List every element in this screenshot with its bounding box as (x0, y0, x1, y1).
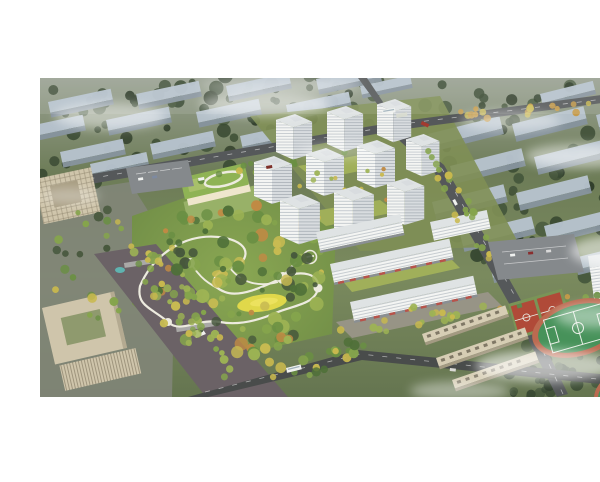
aerial-rendering-figure (40, 16, 600, 466)
tree (425, 148, 431, 154)
tree (235, 274, 247, 286)
tree (87, 293, 97, 303)
tree (486, 255, 492, 261)
tree (187, 216, 195, 224)
tree (565, 294, 570, 299)
tree (221, 373, 228, 380)
tree (225, 278, 231, 284)
bottom-margin (40, 397, 600, 466)
plaza-pool (115, 267, 125, 273)
tree (226, 365, 233, 372)
tree (286, 266, 296, 276)
tree (231, 346, 243, 358)
tree (510, 387, 519, 396)
tree (381, 167, 385, 171)
tree (135, 261, 142, 268)
tree (274, 342, 283, 351)
tree (286, 293, 295, 302)
tree (232, 261, 244, 273)
tree (171, 301, 180, 310)
tree (236, 311, 241, 316)
tree (248, 348, 260, 360)
tree (150, 292, 158, 300)
tree (380, 173, 384, 177)
tree (580, 126, 595, 141)
tree (70, 274, 77, 281)
tree (241, 162, 247, 168)
tree (294, 283, 307, 296)
tree (248, 336, 256, 344)
tree (170, 290, 178, 298)
tree (251, 200, 262, 211)
tree (260, 288, 265, 293)
tree (115, 219, 121, 225)
rendering-scene (40, 66, 600, 425)
tree (75, 210, 80, 215)
tree (130, 248, 139, 257)
tree (202, 228, 208, 234)
tree (429, 154, 435, 160)
tree (118, 226, 124, 232)
tree (455, 218, 460, 223)
tree (201, 209, 212, 220)
tree (160, 319, 168, 327)
tree (272, 322, 283, 333)
rendering-svg (40, 16, 600, 466)
tree (151, 285, 159, 293)
tree (312, 367, 321, 376)
tree (479, 303, 487, 311)
tree (329, 177, 333, 181)
tree (159, 281, 166, 288)
car (450, 368, 456, 372)
tree (260, 301, 269, 310)
tree (104, 233, 110, 239)
tree (195, 289, 209, 303)
tree (82, 221, 89, 228)
tree (103, 217, 111, 225)
tree (167, 299, 172, 304)
tree (249, 310, 255, 316)
tree (171, 263, 183, 275)
tree (441, 316, 449, 324)
tree (248, 161, 253, 166)
tree (310, 297, 324, 311)
tree (360, 342, 367, 349)
tree (275, 362, 286, 373)
tree (456, 187, 462, 193)
tree (311, 177, 317, 183)
tree (436, 167, 442, 173)
tree (415, 321, 422, 328)
tree (270, 374, 276, 380)
tree (258, 267, 267, 276)
tree (223, 206, 234, 217)
tree (259, 253, 268, 262)
tree (220, 266, 226, 272)
tree (281, 275, 292, 286)
tree (471, 209, 478, 216)
tree (219, 295, 225, 301)
tree (337, 326, 345, 334)
tree (54, 235, 63, 244)
tree (95, 315, 100, 320)
parking-lot-east (488, 234, 584, 280)
tree (163, 228, 168, 233)
tree (103, 206, 112, 215)
tree (183, 285, 190, 292)
tree (381, 317, 388, 324)
tree (297, 184, 302, 189)
tree (261, 214, 272, 225)
tree (284, 336, 292, 344)
tree (188, 318, 195, 325)
tree (365, 169, 369, 173)
tree (186, 340, 192, 346)
tree (217, 334, 224, 341)
tree (62, 250, 69, 257)
tree (307, 372, 313, 378)
tree (197, 323, 205, 331)
tree (260, 343, 271, 354)
tree (349, 340, 359, 350)
tree (168, 232, 175, 239)
tree (212, 277, 223, 288)
tree (376, 326, 383, 333)
tree (145, 257, 151, 263)
tree (227, 310, 235, 318)
tree (94, 212, 104, 222)
tree (383, 328, 389, 334)
parked-car (510, 253, 515, 256)
tree (441, 185, 448, 192)
tree (332, 348, 338, 354)
tree (188, 258, 201, 271)
tree (53, 246, 61, 254)
tree (217, 236, 229, 248)
tree (186, 330, 193, 337)
tree (103, 245, 110, 252)
tree (273, 272, 282, 281)
tree (479, 244, 486, 251)
tree (301, 253, 312, 264)
tree (216, 171, 223, 178)
tree (274, 247, 282, 255)
tree (435, 175, 442, 182)
tree (313, 282, 318, 287)
tree (208, 298, 218, 308)
tree (147, 265, 154, 272)
tree (333, 176, 337, 180)
tree (272, 220, 278, 226)
tree (291, 312, 301, 322)
tree (176, 318, 183, 325)
tree (175, 239, 182, 246)
tree (77, 251, 84, 258)
tree (262, 324, 272, 334)
tree (439, 309, 446, 316)
tree (213, 346, 219, 352)
parked-car (528, 251, 533, 254)
tree (236, 167, 243, 174)
tree (219, 350, 225, 356)
tree (429, 310, 436, 317)
tree (433, 161, 440, 168)
tree (483, 234, 489, 240)
tree (201, 310, 206, 315)
tree (410, 304, 417, 311)
tree (298, 355, 308, 365)
tree (240, 326, 246, 332)
tree (49, 156, 59, 166)
tree (109, 297, 118, 306)
tree (230, 133, 239, 142)
tree (52, 286, 59, 293)
tree (164, 125, 171, 132)
top-margin (40, 16, 600, 78)
tree (220, 355, 229, 364)
tree (173, 247, 180, 254)
tree (320, 366, 328, 374)
tree (233, 210, 244, 221)
tree (474, 243, 479, 248)
tree (116, 308, 122, 314)
tree (247, 232, 259, 244)
tree (60, 265, 69, 274)
tree (87, 312, 93, 318)
parked-car (546, 249, 551, 252)
tree (291, 252, 298, 259)
tree (314, 170, 320, 176)
tree (166, 238, 173, 245)
tree (142, 279, 148, 285)
tree (464, 211, 469, 216)
tree (452, 212, 459, 219)
tree (211, 317, 221, 327)
tree (207, 334, 215, 342)
tree (189, 248, 198, 257)
tree (445, 172, 453, 180)
tree (184, 292, 192, 300)
tree (159, 262, 164, 267)
tree (265, 358, 274, 367)
tree (550, 171, 558, 179)
tree (217, 124, 231, 138)
tree (273, 240, 281, 248)
tree (450, 314, 455, 319)
tree (513, 173, 524, 184)
tree (465, 198, 472, 205)
